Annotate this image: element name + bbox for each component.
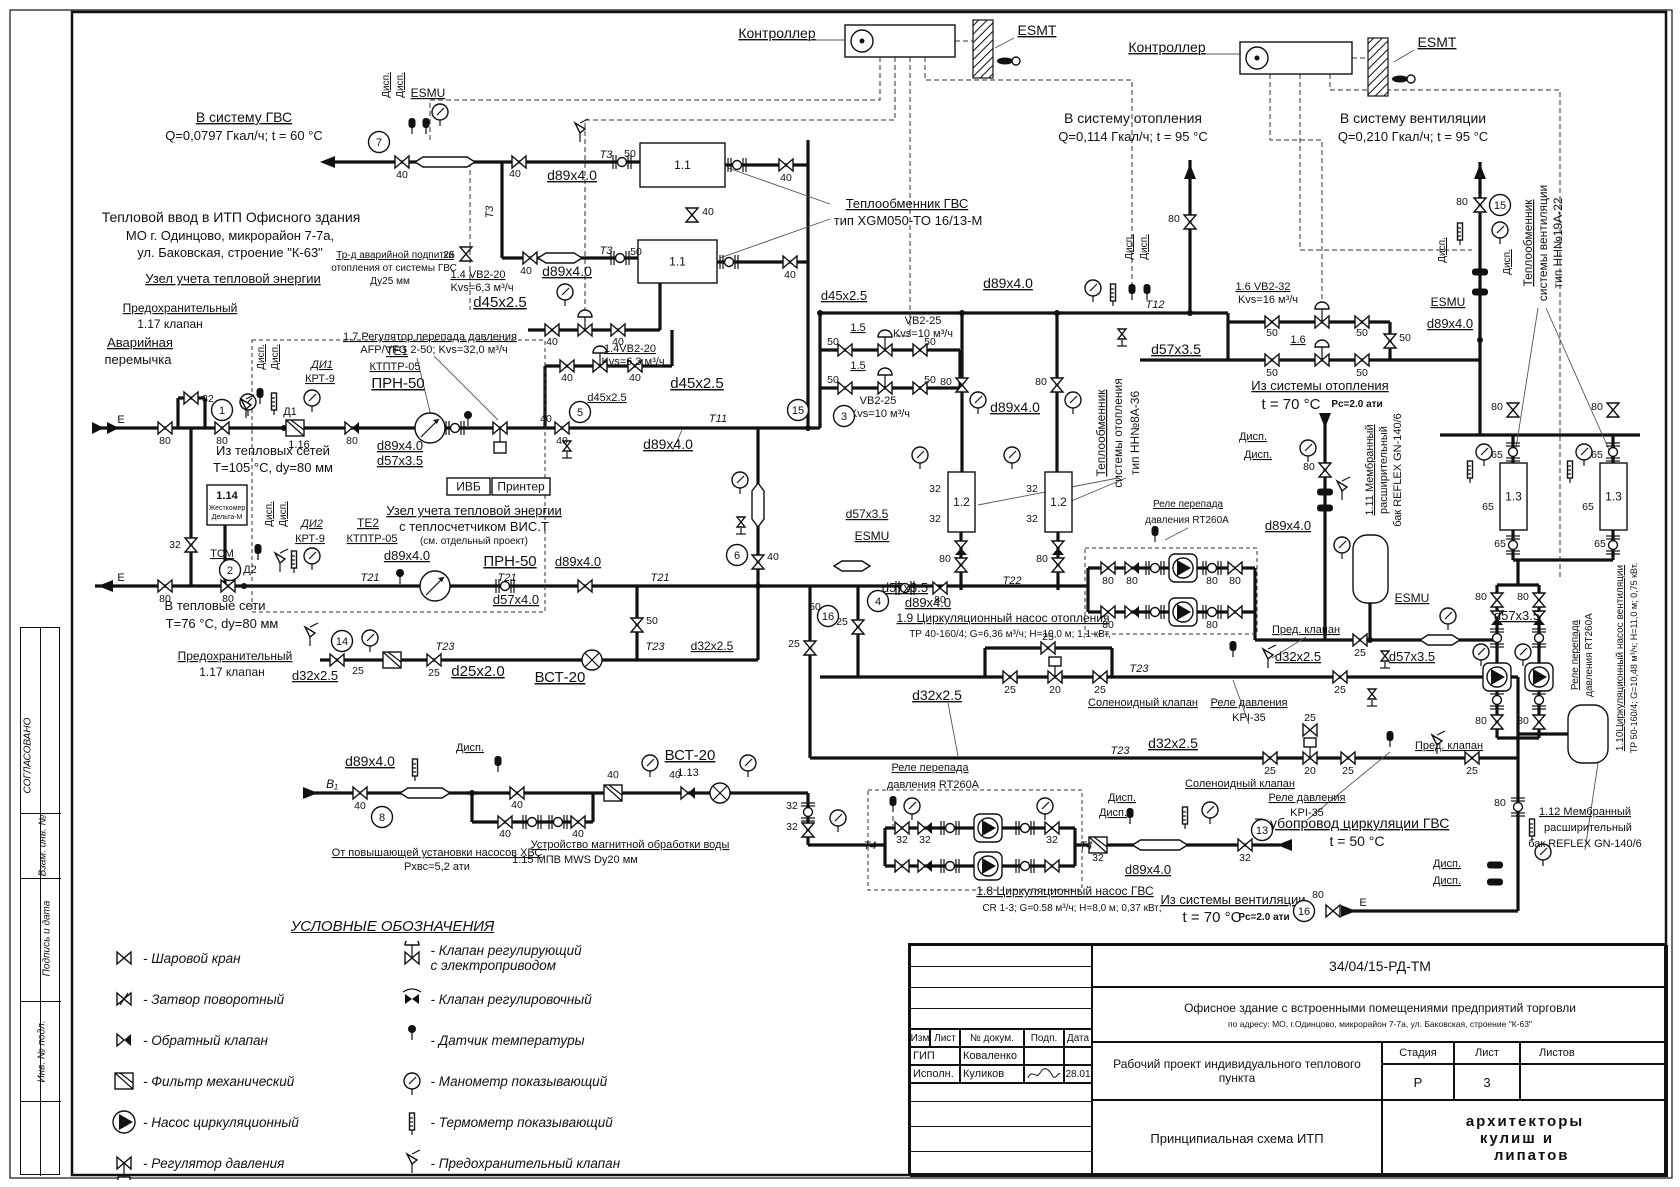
thermo-symbol xyxy=(1111,284,1116,306)
heat-exchanger: 1.2 xyxy=(948,472,975,532)
pipe-dn-label: 25 xyxy=(1004,684,1016,696)
schematic-label: Kvs=10 м³/ч xyxy=(850,408,910,420)
v-symbol xyxy=(578,580,592,592)
pipe-dn-label: 40 xyxy=(767,551,779,563)
label-box: Принтер xyxy=(492,478,550,495)
arr-symbol xyxy=(1319,413,1331,428)
pipe-dn-label: 80 xyxy=(1517,715,1529,727)
svg-text:4: 4 xyxy=(875,596,881,608)
pipe-dn-label: 32 xyxy=(169,539,181,551)
schematic-label: Из системы отопления xyxy=(1251,378,1388,393)
schematic-label: d57x3.5 xyxy=(1389,649,1435,664)
stage-header: Стадия xyxy=(1382,1042,1454,1064)
pumpc-icon xyxy=(105,1105,143,1139)
pipe-dn-label: 40 xyxy=(702,206,714,218)
pipe-dn-label: 50 xyxy=(924,374,936,386)
schematic-label: d89x4.0 xyxy=(542,263,592,279)
schematic-label: Дисп. xyxy=(278,501,289,527)
schematic-label: Предохранительный xyxy=(123,301,238,315)
schematic-label: Пред. клапан xyxy=(1272,624,1340,636)
gauge-symbol xyxy=(1065,392,1081,414)
callout-8: 8 xyxy=(372,807,393,828)
svg-text:8: 8 xyxy=(379,812,385,824)
schematic-label: 1.17 клапан xyxy=(199,665,265,679)
svg-text:2: 2 xyxy=(227,565,233,577)
schematic-label: В систему отопления xyxy=(1064,110,1202,126)
doc-project: Рабочий проект индивидуального теплового… xyxy=(1092,1042,1382,1100)
schematic-label: Узел учета тепловой энергии xyxy=(145,271,321,286)
comp-symbol xyxy=(1532,629,1546,647)
v-symbol xyxy=(560,360,574,372)
pipe-dn-label: 25 xyxy=(1342,765,1354,777)
pipe-dn-label: 80 xyxy=(1475,715,1487,727)
gauge-symbol xyxy=(432,104,448,126)
schematic-label: Рс=2.0 ати xyxy=(1331,399,1382,410)
pipe-dn-label: 80 xyxy=(1491,401,1503,413)
pipe-dn-label: 65 xyxy=(1594,538,1606,550)
v-symbol xyxy=(779,159,793,171)
comp-symbol xyxy=(728,158,746,172)
schematic-label: Т=76 °С, dy=80 мм xyxy=(166,616,279,631)
schematic-label: с теплосчетчиком ВИС.Т xyxy=(399,519,549,534)
dot-symbol xyxy=(469,790,475,796)
sn-symbol xyxy=(423,118,430,134)
ts-icon xyxy=(393,1023,431,1057)
pipe-dn-label: 40 xyxy=(612,336,624,348)
comp-symbol xyxy=(1506,443,1520,461)
v-symbol xyxy=(1533,593,1545,607)
ev-icon xyxy=(393,941,431,975)
schematic-label: Аварийная xyxy=(107,335,173,350)
pipe-dn-label: 50 xyxy=(646,615,658,627)
schematic-label: d89x4.0 xyxy=(1265,518,1311,533)
legend-item-label: - Обратный клапан xyxy=(143,1033,268,1048)
callout-1: 1 xyxy=(212,400,233,421)
pill-symbol xyxy=(538,253,582,263)
row-gip-name: Коваленко xyxy=(960,1047,1024,1065)
sn-symbol xyxy=(495,756,502,772)
pipe-dn-label: 40 xyxy=(520,265,532,277)
pipe-dn-label: 50 xyxy=(630,246,642,258)
heat-exchanger: 1.3 xyxy=(1500,463,1527,530)
gauge-symbol xyxy=(642,755,658,777)
svg-text:1.3: 1.3 xyxy=(1605,490,1622,504)
schematic-label: 1.11 Мембранный xyxy=(1364,424,1376,515)
v-icon xyxy=(105,941,143,975)
legend-item: - Насос циркуляционный xyxy=(105,1105,393,1139)
pill-symbol xyxy=(1133,840,1188,850)
schematic-label: перемычка xyxy=(105,352,173,367)
pipe-dn-label: 32 xyxy=(1092,852,1104,864)
pumpsq-symbol xyxy=(974,814,1002,842)
schematic-label: d57x4.0 xyxy=(493,592,539,607)
v-symbol xyxy=(783,256,797,268)
schematic-label: KPI-35 xyxy=(1232,712,1266,724)
sidebar-inv: Инв. № подл. xyxy=(37,1020,48,1082)
schematic-label: давления RT260A xyxy=(1584,613,1595,697)
v-symbol xyxy=(221,580,235,592)
pipe-dn-label: 32 xyxy=(786,821,798,833)
schematic-label: В систему вентиляции xyxy=(1340,110,1486,126)
snh-symbol xyxy=(1487,879,1503,886)
schematic-label: КРТ-9 xyxy=(305,373,335,385)
schematic-label: ESMU xyxy=(855,529,890,543)
pipe-dn-label: 80 xyxy=(934,594,946,606)
ts-symbol xyxy=(396,569,404,584)
v-symbol xyxy=(611,324,625,336)
filter-icon xyxy=(105,1064,143,1098)
v-symbol xyxy=(631,618,643,632)
pipe-dn-label: 50 xyxy=(924,336,936,348)
v-symbol xyxy=(571,816,585,828)
pipe-dn-label: 40 xyxy=(509,168,521,180)
legend-item: - Затвор поворотный xyxy=(105,982,393,1016)
pipe-dn-label: 25 xyxy=(352,665,364,677)
sheet-value: 3 xyxy=(1454,1064,1520,1100)
schematic-label: d32x2.5 xyxy=(1148,735,1198,751)
v-symbol xyxy=(1051,378,1063,392)
legend-item-label: - Предохранительный клапан xyxy=(431,1156,621,1171)
wmeter-symbol xyxy=(582,650,602,670)
pipe-dn-label: 32 xyxy=(1239,852,1251,864)
callout-2: 2 xyxy=(220,560,241,581)
schematic-label: Дисп. xyxy=(1502,249,1513,275)
comp-symbol xyxy=(1606,443,1620,461)
gauge-symbol xyxy=(362,630,378,652)
pipe-dn-label: 20 xyxy=(1049,684,1061,696)
schematic-label: d57x3.5 xyxy=(882,580,928,595)
pipe-dn-label: 80 xyxy=(159,435,171,447)
v-symbol xyxy=(1228,606,1242,618)
schematic-label: Узел учета тепловой энергии xyxy=(386,503,562,518)
schematic-label: Q=0,0797 Гкал/ч; t = 60 °C xyxy=(165,128,323,143)
pipe-dn-label: 80 xyxy=(1206,575,1218,587)
thermo-symbol xyxy=(1458,223,1463,245)
svg-text:1.1: 1.1 xyxy=(669,255,686,269)
schematic-label: d89x4.0 xyxy=(1125,862,1171,877)
schematic-label: ДИ1 xyxy=(309,359,333,371)
schematic-label: AFP/VFG 2-50; Kvs=32,0 м³/ч xyxy=(360,344,508,356)
signature xyxy=(1026,1066,1062,1082)
snh-symbol xyxy=(1317,489,1333,496)
schematic-label: (см. отдельный проект) xyxy=(420,536,528,547)
pipe-dn-label: 80 xyxy=(1591,401,1603,413)
schematic-label: Дисп. xyxy=(1433,858,1461,870)
v-symbol xyxy=(804,641,816,655)
row-gip-role: ГИП xyxy=(910,1047,960,1065)
pipe-dn-label: 32 xyxy=(919,834,931,846)
comp-symbol xyxy=(523,815,541,829)
pipe-dn-label: 50 xyxy=(827,374,839,386)
schematic-label: d89x4.0 xyxy=(345,753,395,769)
thermo-symbol xyxy=(1468,461,1473,483)
callout-15: 15 xyxy=(1490,195,1511,216)
pipe-dn-label: 80 xyxy=(940,376,952,388)
schematic-label: Дисп. xyxy=(1244,449,1272,461)
svg-text:1.2: 1.2 xyxy=(953,495,970,509)
comp-symbol xyxy=(1203,605,1221,619)
v-symbol xyxy=(1184,215,1196,229)
pipe-dn-label: 80 xyxy=(346,435,358,447)
label-box: ИВБ xyxy=(447,478,490,495)
schematic-label: Соленоидный клапан xyxy=(1088,697,1198,709)
v-symbol xyxy=(1303,724,1317,736)
pipe-dn-label: 40 xyxy=(780,172,792,184)
schematic-label: d57x3.5 xyxy=(1151,341,1201,357)
gauge-symbol xyxy=(740,755,756,777)
schematic-label: 1.7 Регулятор перепада давления xyxy=(343,331,517,343)
svg-text:1.2: 1.2 xyxy=(1050,495,1067,509)
schematic-label: Дисп. xyxy=(1437,237,1448,263)
schematic-label: Т21 xyxy=(498,572,517,584)
heat-exchanger: 1.1 xyxy=(638,240,717,283)
comp-symbol xyxy=(1146,561,1164,575)
pipe-dn-label: 80 xyxy=(159,593,171,605)
pipe-dn-label: 40 xyxy=(669,769,681,781)
callout-16: 16 xyxy=(818,606,839,627)
schematic-label: Т4 xyxy=(864,840,877,852)
pipe-dn-label: 32 xyxy=(1046,834,1058,846)
sn-symbol xyxy=(255,544,262,560)
legend-item-label: - Клапан регулирующий с электроприводом xyxy=(431,943,582,973)
v-symbol xyxy=(1263,752,1277,764)
cv-symbol xyxy=(1125,606,1139,618)
v-symbol xyxy=(838,344,852,356)
schematic-label: системы отопления xyxy=(1111,378,1125,487)
schematic-label: ПРН-50 xyxy=(371,375,424,392)
schematic-label: отопления от системы ГВС xyxy=(331,263,457,274)
schematic-label: ТСМ xyxy=(210,548,234,560)
svg-text:15: 15 xyxy=(792,405,804,417)
v-symbol xyxy=(1491,715,1503,729)
schematic-label: От повышающей установки насосов ХВС xyxy=(332,847,543,859)
pillv-symbol xyxy=(752,483,764,527)
cv-symbol xyxy=(1052,541,1064,555)
schematic-label: 1.17 клапан xyxy=(137,317,203,331)
schematic-label: 1.5 xyxy=(850,360,865,372)
callout-4: 4 xyxy=(868,591,889,612)
filter-symbol xyxy=(286,420,304,436)
schematic-label: Реле давления xyxy=(1268,792,1345,804)
schematic-label: Реле перепада xyxy=(1570,620,1581,691)
schematic-label: ESMU xyxy=(1431,295,1466,309)
snh-symbol xyxy=(1317,505,1333,512)
v-symbol xyxy=(158,580,172,592)
title-block: Изм Лист № докум. Подп. Дата ГИП Ковален… xyxy=(908,943,1666,1175)
pipe-dn-label: 65 xyxy=(1491,449,1503,461)
v-symbol xyxy=(1045,822,1059,834)
legend-title: УСЛОВНЫЕ ОБОЗНАЧЕНИЯ xyxy=(105,918,680,935)
arr-symbol xyxy=(320,156,335,168)
pipe-dn-label: 25 xyxy=(1304,712,1316,724)
v-symbol xyxy=(498,816,512,828)
schematic-label: Дисп. xyxy=(1108,792,1136,804)
thermo-symbol xyxy=(1568,461,1573,483)
v-symbol xyxy=(1355,354,1369,366)
v-symbol xyxy=(158,422,172,434)
callout-15: 15 xyxy=(788,400,809,421)
pumpsq-symbol xyxy=(974,852,1002,880)
v-symbol xyxy=(512,156,526,168)
comp-symbol xyxy=(720,255,738,269)
schematic-label: ТР 50-160/4; G=10,48 м³/ч; Н=11,0 м; 0,7… xyxy=(1629,563,1639,754)
gauge-symbol xyxy=(1037,798,1053,820)
dot-symbol xyxy=(805,425,811,431)
safety-icon xyxy=(393,1146,431,1180)
schematic-label: t = 50 °C xyxy=(1329,833,1384,849)
dot-symbol xyxy=(817,310,823,316)
schematic-label: Kvs=6,3 м³/ч xyxy=(601,356,664,368)
legend-item-label: - Затвор поворотный xyxy=(143,992,284,1007)
drain-symbol xyxy=(1117,329,1127,346)
gauge-symbol xyxy=(1085,280,1101,302)
schematic-label: ESMU xyxy=(411,86,446,100)
row-isp-name: Куликов xyxy=(960,1065,1024,1083)
gauge-symbol xyxy=(1515,644,1531,666)
dot-symbol xyxy=(1054,310,1060,316)
expansion-tank xyxy=(1568,705,1608,763)
callout-6: 6 xyxy=(727,545,748,566)
schematic-label: 1.4 VB2-20 xyxy=(450,269,505,281)
heat-exchanger: 1.3 xyxy=(1600,463,1627,530)
schematic-label: Трубопровод циркуляции ГВС xyxy=(1255,815,1450,831)
snh-symbol xyxy=(1472,289,1488,296)
schematic-label: Контроллер xyxy=(738,25,815,41)
callout-5: 5 xyxy=(570,402,591,423)
sol-symbol xyxy=(1303,738,1317,764)
schematic-label: ТР 40-160/4; G=6,36 м³/ч; Н=10,0 м; 1,1 … xyxy=(909,629,1111,640)
schematic-label: Контроллер xyxy=(1128,39,1205,55)
schematic-label: Дисп. xyxy=(1433,875,1461,887)
col-data: Дата xyxy=(1064,1029,1092,1047)
expansion-tank xyxy=(1353,535,1388,603)
legend-item-label: - Клапан регулировочный xyxy=(431,992,592,1007)
schematic-label: Kvs=16 м³/ч xyxy=(1238,294,1298,306)
pipe-dn-label: 32 xyxy=(929,513,941,525)
schematic-label: d32x2.5 xyxy=(292,668,338,683)
schematic-label: Т11 xyxy=(709,413,727,425)
rv-icon xyxy=(393,982,431,1016)
schematic-label: 1.16 xyxy=(288,439,309,451)
pumpsq-symbol xyxy=(1525,663,1553,691)
legend-item-label: - Шаровой кран xyxy=(143,951,241,966)
schematic-label: Дисп. xyxy=(1239,431,1267,443)
schematic-label: МО г. Одинцово, микрорайон 7-7а, xyxy=(126,228,334,243)
v-symbol xyxy=(1101,562,1115,574)
ev-symbol xyxy=(878,368,892,394)
schematic-label: Дельта-М xyxy=(212,514,243,521)
v-symbol xyxy=(1093,671,1107,683)
svg-text:ИВБ: ИВБ xyxy=(456,480,481,494)
gauge-symbol xyxy=(1476,444,1492,466)
logo: архитекторы кулиш и липатов xyxy=(1466,1113,1584,1164)
schematic-label: Из тепловых сетей xyxy=(216,443,330,458)
sn-symbol xyxy=(1230,641,1237,657)
signature-cell xyxy=(1024,1065,1064,1083)
pipe-dn-label: 32 xyxy=(929,483,941,495)
v-symbol xyxy=(545,324,559,336)
gauge-symbol xyxy=(557,284,573,306)
sn-symbol xyxy=(1127,808,1134,824)
svg-text:1.3: 1.3 xyxy=(1505,490,1522,504)
schematic-label: d57x3.5 xyxy=(846,507,889,521)
arr-symbol xyxy=(1474,164,1486,179)
svg-text:1.1: 1.1 xyxy=(674,158,691,172)
callout-7: 7 xyxy=(369,132,390,153)
pipe-dn-label: 80 xyxy=(1312,889,1324,901)
comp-symbol xyxy=(1016,821,1034,835)
pipe-dn-label: 50 xyxy=(1266,327,1278,339)
pipe-dn-label: 40 xyxy=(511,799,523,811)
gauge-symbol xyxy=(1576,444,1592,466)
v-symbol xyxy=(1465,752,1479,764)
v-symbol xyxy=(427,654,441,666)
schematic-label: 1.15 МПВ MWS Dy20 мм xyxy=(512,854,638,866)
legend-item: - Предохранительный клапан xyxy=(393,1146,681,1180)
sheets-header: Листов xyxy=(1520,1042,1668,1064)
schematic-label: тип HH№19A-22 xyxy=(1551,197,1565,288)
schematic-label: 1.6 xyxy=(1290,334,1305,346)
v-symbol xyxy=(1491,593,1503,607)
legend-item-label: - Насос циркуляционный xyxy=(143,1115,299,1130)
pipe-dn-label: 40 xyxy=(540,413,552,425)
sn-symbol xyxy=(257,388,264,404)
filter-symbol xyxy=(383,652,401,668)
pipe-dn-label: 80 xyxy=(1494,797,1506,809)
col-podp: Подп. xyxy=(1024,1029,1064,1047)
sheet-title-cell: Принципиальная схема ИТП xyxy=(1092,1100,1382,1177)
heat-exchanger: 1.1 xyxy=(640,143,725,187)
schematic-label: Т12 xyxy=(1146,299,1165,311)
dot-symbol xyxy=(959,310,965,316)
schematic-label: d89x4.0 xyxy=(983,275,1033,291)
v-symbol xyxy=(1003,671,1017,683)
pipe-dn-label: 65 xyxy=(1482,501,1494,513)
callout-13: 13 xyxy=(1252,820,1273,841)
schematic-label: Т21 xyxy=(651,572,670,584)
schematic-label: d89x4.0 xyxy=(1427,316,1473,331)
schematic-label: d45x2.5 xyxy=(473,294,526,311)
schematic-label: d45x2.5 xyxy=(587,392,626,404)
arr-symbol xyxy=(303,787,318,799)
gauge-symbol xyxy=(1334,537,1350,559)
controller-box xyxy=(845,25,955,57)
schematic-label: Дисп. xyxy=(1099,807,1127,819)
gauge-symbol xyxy=(904,798,920,820)
col-izm: Изм xyxy=(910,1029,930,1047)
schematic-label: CR 1-3; G=0.58 м³/ч; Н=8,0 м; 0,37 кВт; xyxy=(982,903,1161,914)
dot-symbol xyxy=(755,583,761,589)
pipe-dn-label: 80 xyxy=(1102,575,1114,587)
v-symbol xyxy=(895,822,909,834)
safety-symbol xyxy=(305,623,318,646)
pipe-dn-label: 50 xyxy=(1356,327,1368,339)
sidebar-approved: СОГЛАСОВАНО xyxy=(23,724,34,794)
schematic-label: Рхвс=5,2 ати xyxy=(404,861,470,873)
schematic-label: VB2-25 xyxy=(860,395,897,407)
schematic-label: КРТ-9 xyxy=(295,533,325,545)
schematic-label: Тр-д аварийной подпитки xyxy=(336,250,454,261)
ev-symbol xyxy=(1315,302,1329,328)
v-symbol xyxy=(510,787,524,799)
schematic-label: Ду25 мм xyxy=(370,276,410,287)
cv-symbol xyxy=(681,787,695,799)
comp-symbol xyxy=(446,421,464,435)
schematic-label: Kvs=6,3 м³/ч xyxy=(450,282,513,294)
pill-symbol xyxy=(400,788,450,798)
schematic-label: Д1 xyxy=(283,406,297,418)
pipe-dn-label: 40 xyxy=(572,828,584,840)
